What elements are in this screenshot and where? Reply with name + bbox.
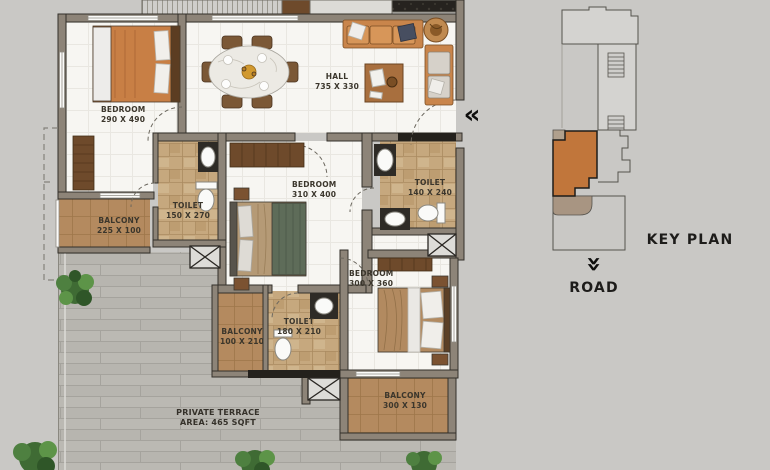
room-dims: 735 X 330 (306, 82, 368, 92)
nightstand (432, 276, 448, 287)
room-label-toilet-140: TOILET 140 X 240 (400, 178, 460, 198)
room-label-balcony-225: BALCONY 225 X 100 (88, 216, 150, 236)
room-name: BEDROOM (101, 105, 145, 115)
terrace-area: AREA: 465 SQFT (157, 418, 279, 428)
room-dims: 150 X 270 (158, 211, 218, 221)
balcony-rail (56, 200, 59, 247)
road-arrow-icon: » (580, 250, 608, 278)
room-name: TOILET (268, 317, 330, 327)
wardrobe (230, 143, 304, 167)
kitchen-counter-slab (392, 0, 456, 12)
plant (56, 270, 94, 306)
entry-arrow-icon: « (458, 101, 486, 129)
room-label-toilet-180: TOILET 180 X 210 (268, 317, 330, 337)
planter-pot (424, 18, 448, 42)
terrace-label: PRIVATE TERRACE AREA: 465 SQFT (157, 408, 279, 429)
wash-basin (201, 147, 215, 167)
nightstand (432, 354, 448, 365)
hall-sofa (343, 20, 423, 48)
wash-basin (377, 149, 393, 171)
stair-slab (142, 0, 282, 14)
room-name: BEDROOM (349, 269, 393, 279)
road-label: ROAD (564, 280, 624, 296)
room-name: HALL (306, 72, 368, 82)
shaft-icon (428, 234, 456, 256)
wash-basin (385, 212, 405, 226)
room-name: BALCONY (88, 216, 150, 226)
terrace-name: PRIVATE TERRACE (157, 408, 279, 418)
room-dims: 100 X 210 (211, 337, 273, 347)
key-plan-highlighted-unit (553, 131, 597, 196)
shaft-icon (190, 246, 220, 268)
plant (13, 441, 57, 470)
lobby-slab (310, 0, 392, 14)
bed-bedroom-300 (378, 276, 450, 365)
room-dims: 300 X 360 (349, 279, 393, 289)
room-label-balcony-300: BALCONY 300 X 130 (374, 391, 436, 411)
room-name: BALCONY (374, 391, 436, 401)
room-label-bedroom-290: BEDROOM 290 X 490 (101, 105, 145, 125)
key-plan-adjacent-unit (598, 130, 630, 182)
room-label-hall: HALL 735 X 330 (306, 72, 368, 92)
shaft-icon (308, 378, 340, 400)
nightstand (234, 188, 249, 200)
bed-bedroom-290 (93, 26, 180, 102)
wood-box (282, 0, 310, 14)
key-plan-title: KEY PLAN (640, 232, 740, 248)
room-name: TOILET (158, 201, 218, 211)
wc-toilet (418, 203, 445, 223)
room-dims: 290 X 490 (101, 115, 145, 125)
floor-plan-canvas: BEDROOM 290 X 490 HALL 735 X 330 TOILET … (0, 0, 770, 470)
room-dims: 140 X 240 (400, 188, 460, 198)
room-dims: 225 X 100 (88, 226, 150, 236)
room-label-balcony-100: BALCONY 100 X 210 (211, 327, 273, 347)
corner-sofa (425, 45, 453, 105)
coffee-table (365, 64, 403, 102)
room-label-bedroom-300: BEDROOM 300 X 360 (349, 269, 393, 289)
nightstand (234, 278, 249, 290)
wardrobe (73, 136, 94, 190)
room-dims: 180 X 210 (268, 327, 330, 337)
key-plan (553, 7, 638, 250)
plant (406, 451, 442, 470)
room-label-bedroom-310: BEDROOM 310 X 400 (292, 180, 336, 200)
room-dims: 310 X 400 (292, 190, 336, 200)
room-name: BALCONY (211, 327, 273, 337)
room-dims: 300 X 130 (374, 401, 436, 411)
adjacent-structures (142, 0, 456, 14)
wash-basin (315, 298, 333, 314)
room-label-toilet-150: TOILET 150 X 270 (158, 201, 218, 221)
room-name: TOILET (400, 178, 460, 188)
room-name: BEDROOM (292, 180, 336, 190)
bed-bedroom-310 (230, 188, 306, 290)
